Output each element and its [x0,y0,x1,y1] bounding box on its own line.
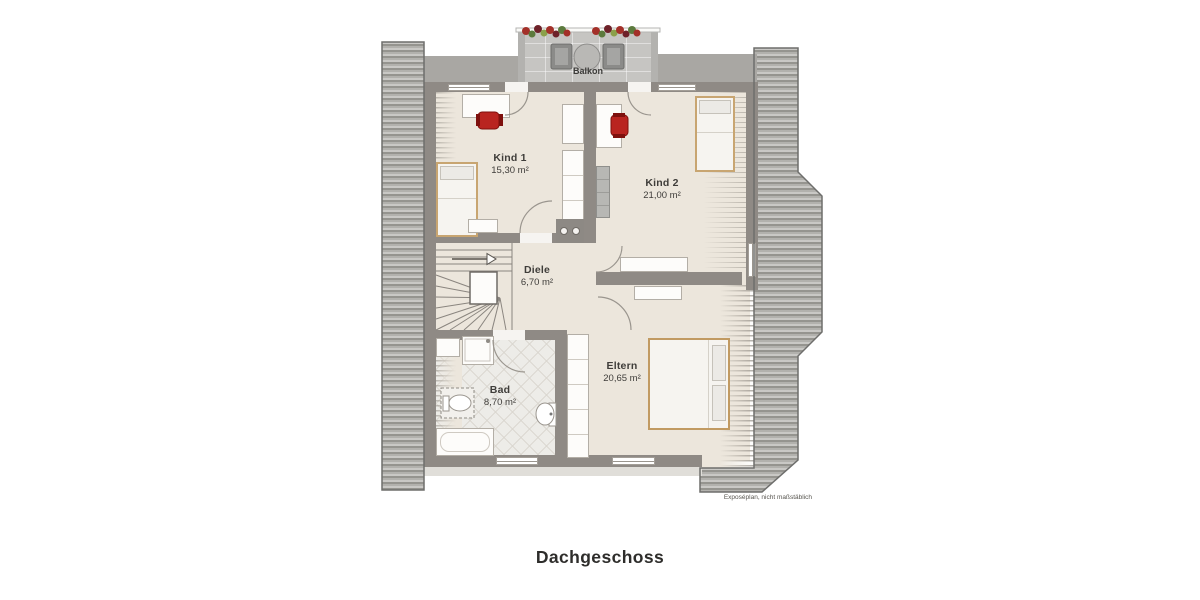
room-name: Eltern [557,360,687,372]
desk-kind1 [462,94,510,118]
sideboard-kind2 [620,257,688,272]
washbasin [436,338,460,357]
door-opening [493,330,525,340]
wardrobe-eltern [567,334,589,458]
bed-kind2 [695,96,735,172]
bathtub [436,428,494,456]
door-opening [520,233,552,243]
balcony-label: Balkon [528,66,648,76]
door-opening [628,82,651,92]
eaves-right [658,54,757,84]
room-name: Kind 1 [445,152,575,164]
window [748,243,756,277]
floor-plan-page: Balkon Kind 1 15,30 m² Kind 2 21,00 m² D… [0,0,1200,600]
room-name: Bad [435,384,565,396]
room-label-bad: Bad 8,70 m² [435,384,565,409]
room-area: 8,70 m² [435,397,565,409]
wall [424,455,702,467]
room-label-diele: Diele 6,70 m² [472,264,602,289]
balcony-edge-left [518,30,525,86]
room-area: 21,00 m² [597,190,727,202]
chimney-block [556,219,584,243]
dresser-eltern [634,286,682,300]
disclaimer-note: Exposéplan, nicht maßstäblich [600,494,812,501]
window [612,457,655,465]
wall [528,82,628,92]
window [496,457,538,465]
eaves-left [424,56,518,84]
room-label-eltern: Eltern 20,65 m² [557,360,687,385]
room-name: Diele [472,264,602,276]
room-area: 6,70 m² [472,277,602,289]
window [448,84,490,91]
bottom-wall-footing [424,467,702,476]
balcony-floor [518,30,658,86]
room-name: Kind 2 [597,177,727,189]
wall [596,272,742,285]
room-label-kind2: Kind 2 21,00 m² [597,177,727,202]
page-title: Dachgeschoss [0,547,1200,568]
shower [462,336,494,365]
roof-left [382,42,424,490]
window [658,84,696,91]
dresser-kind1 [468,219,498,233]
door-opening [505,82,528,92]
room-label-kind1: Kind 1 15,30 m² [445,152,575,177]
wall [424,82,436,467]
desk-kind2 [596,104,622,148]
room-area: 20,65 m² [557,373,687,385]
wall [584,92,596,243]
balcony-edge-right [651,30,658,86]
room-area: 15,30 m² [445,165,575,177]
wardrobe-kind1 [562,104,584,144]
